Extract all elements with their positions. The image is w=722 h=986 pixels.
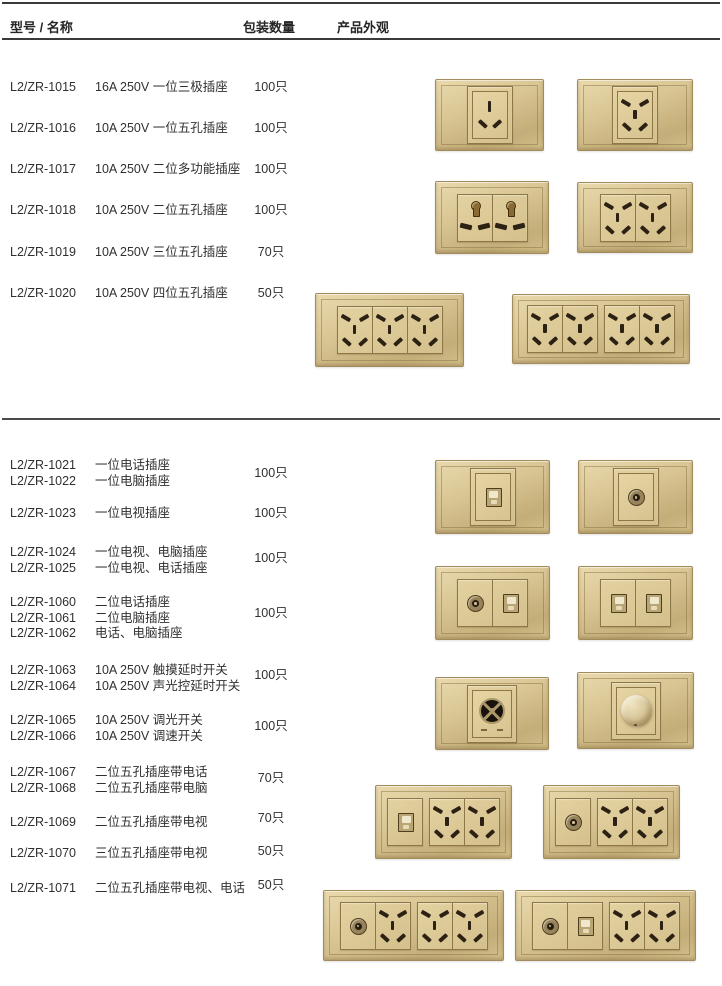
model-number: L2/ZR-1063 [10,662,92,678]
quantity: 50只 [249,843,293,859]
socket-module-group [555,798,591,846]
socket-slot [450,829,460,838]
socket-slot [434,829,444,838]
rj-jack-icon [567,903,602,949]
socket-module-group [612,86,658,144]
product-name: 10A 250V 四位五孔插座 [95,285,255,301]
socket-slot [473,909,483,917]
five-hole-socket-icon [617,91,653,139]
five-hole-socket-icon [375,903,410,949]
rj-jack-face [581,920,590,927]
socket-module-group [604,305,675,353]
tv-coax-ring [628,489,645,506]
model-number: L2/ZR-1067 [10,764,92,780]
universal-socket-icon [458,195,492,241]
socket-slot [486,806,496,814]
socket-slot [567,336,577,345]
product-image-two-gang-jack-socket [578,566,693,640]
product-image-five-hole-with-tv-socket [543,785,680,859]
socket-slot [428,314,438,322]
product-name: 二位五孔插座带电视、电话 [95,880,270,896]
model-number: L2/ZR-1021 [10,457,92,473]
socket-slot [609,336,619,345]
socket-slot [378,909,388,917]
socket-slot [393,314,403,322]
top-rule [2,2,720,4]
tv-coax-ring [467,595,484,612]
model-number: L2/ZR-1024 [10,544,92,560]
socket-slot [602,829,612,838]
product-name: 三位五孔插座带电视 [95,845,270,861]
tv-coax-dot [474,602,477,605]
column-header-appearance: 产品外观 [337,17,389,36]
quantity: 100只 [249,505,293,521]
dimmer-knob-mark [634,724,637,726]
model-number: L2/ZR-1064 [10,678,92,694]
product-name: 二位五孔插座带电脑 [95,780,270,796]
product-name: 10A 250V 声光控延时开关 [95,678,270,694]
socket-slot [473,933,483,942]
socket-slot [618,829,628,838]
socket-slot [622,122,632,131]
product-image-two-gang-multifunction-socket [435,181,549,254]
keyhole-stem [508,208,515,217]
socket-slot [626,313,636,321]
socket-slot [375,314,385,322]
product-image-five-hole-with-jack-socket [375,785,512,859]
rj-jack-face [650,597,659,604]
product-image-dimmer-switch [577,672,694,749]
socket-module-group [611,682,661,740]
tv-coax-dot [357,925,360,928]
product-image-telephone-computer-socket [435,460,550,534]
socket-module-group [597,798,668,846]
socket-module-group [429,798,500,846]
model-number: L2/ZR-1069 [10,814,92,830]
quantity: 70只 [249,810,293,826]
socket-slot [584,313,594,321]
model-number: L2/ZR-1062 [10,625,92,641]
socket-slot [358,337,368,346]
socket-slot [477,222,490,230]
tv-coax-core [472,600,479,607]
product-name: 二位电话插座 [95,594,270,610]
socket-slot [633,110,637,119]
socket-slot [603,201,613,209]
header-rule [2,38,720,40]
socket-slot [601,806,611,814]
socket-module-group [532,902,603,950]
socket-slot [566,313,576,321]
tv-coax-core [570,819,577,826]
product-name: 10A 250V 一位五孔插座 [95,120,255,136]
quantity: 100只 [249,605,293,621]
five-hole-socket-icon [639,306,674,352]
five-hole-socket-icon [418,903,452,949]
quantity: 100只 [249,550,293,566]
model-number: L2/ZR-1060 [10,594,92,610]
socket-slot [438,909,448,917]
quantity: 100只 [249,667,293,683]
quantity: 100只 [249,79,293,95]
socket-slot [380,933,390,942]
socket-slot [619,806,629,814]
model-number: L2/ZR-1018 [10,202,92,218]
socket-slot [377,337,387,346]
quantity: 100只 [249,161,293,177]
socket-slot [488,101,492,112]
model-number: L2/ZR-1023 [10,505,92,521]
socket-slot [621,201,631,209]
socket-slot [451,806,461,814]
tv-coax-icon [533,903,567,949]
rj-jack-body [578,917,594,936]
socket-slot [543,324,547,333]
socket-slot [532,336,542,345]
rj-jack-tab [403,825,409,829]
socket-slot [616,213,620,222]
socket-slot [661,313,671,321]
catalog-page: 型号 / 名称 包装数量 产品外观 L2/ZR-101516A 250V 一位三… [0,0,722,986]
rj-jack-tab [583,929,589,933]
product-name: 一位电视插座 [95,505,270,521]
socket-slot [640,225,650,234]
product-image-tv-socket [578,460,693,534]
five-hole-socket-icon [464,799,499,845]
socket-module-group [609,902,680,950]
socket-slot [459,222,472,230]
tv-coax-ring [565,814,582,831]
socket-slot [531,313,541,321]
product-name: 二位五孔插座带电话 [95,764,270,780]
five-hole-socket-icon [632,799,667,845]
model-number: L2/ZR-1066 [10,728,92,744]
socket-slot [420,909,430,917]
tv-coax-core [633,494,640,501]
product-name: 10A 250V 三位五孔插座 [95,244,255,260]
socket-module-group [600,579,671,627]
rj-jack-face [507,597,516,604]
socket-slot [655,324,659,333]
five-hole-socket-icon [610,903,644,949]
quantity: 70只 [249,244,293,260]
socket-slot [621,99,631,107]
universal-socket-icon [492,195,527,241]
product-name: 一位电视、电话插座 [95,560,270,576]
product-image-one-gang-three-pin-socket [435,79,544,151]
product-image-three-gang-five-hole-with-tv-socket [323,890,504,961]
socket-slot [649,933,659,942]
five-hole-socket-icon [528,306,562,352]
tv-coax-icon [556,799,590,845]
dimmer-knob-icon [616,687,656,735]
quantity: 50只 [249,285,293,301]
socket-slot [621,225,631,234]
product-name: 16A 250V 一位三极插座 [95,79,255,95]
rj-jack-icon [475,473,511,521]
socket-slot [549,313,559,321]
five-hole-socket-icon [372,307,407,353]
quantity: 100只 [249,120,293,136]
socket-slot [388,325,392,334]
five-hole-socket-icon [452,903,487,949]
socket-module-group [340,902,411,950]
socket-module-group [467,685,517,743]
socket-slot [485,829,495,838]
tv-coax-ring [350,918,367,935]
quantity: 100只 [249,465,293,481]
socket-slot [613,817,617,826]
socket-slot [396,933,406,942]
socket-slot [605,225,615,234]
socket-slot [643,313,653,321]
rj-jack-icon [388,799,422,845]
socket-slot [469,829,479,838]
socket-slot [578,324,582,333]
five-hole-socket-icon [598,799,632,845]
tv-coax-icon [341,903,375,949]
socket-slot [433,921,437,930]
socket-slot [614,933,624,942]
model-number: L2/ZR-1020 [10,285,92,301]
sound-sensor-icon [472,690,512,738]
product-name: 二位五孔插座带电视 [95,814,270,830]
rj-jack-face [489,491,498,498]
tv-coax-dot [572,821,575,824]
tv-coax-dot [549,925,552,928]
socket-module-group [467,86,513,144]
socket-slot [342,337,352,346]
rj-jack-tab [491,500,497,504]
socket-module-group [337,306,443,354]
socket-slot [480,817,484,826]
three-pin-socket-icon [472,91,508,139]
socket-slot [423,325,427,334]
socket-slot [492,119,502,128]
socket-slot [396,909,406,917]
product-name: 一位电视、电脑插座 [95,544,270,560]
product-image-sound-light-control-delay-switch [435,677,549,750]
product-name: 电话、电脑插座 [95,625,270,641]
model-number: L2/ZR-1068 [10,780,92,796]
socket-slot [653,829,663,838]
socket-module-group [387,798,423,846]
five-hole-socket-icon [644,903,679,949]
socket-slot [340,314,350,322]
socket-module-group [527,305,598,353]
socket-slot [468,806,478,814]
dimmer-knob-body [621,695,651,725]
sound-sensor-body [479,698,505,724]
socket-slot [630,909,640,917]
sound-sensor-center [490,708,495,713]
rj-jack-body [611,594,627,613]
socket-slot [494,222,507,230]
socket-slot [608,313,618,321]
tv-coax-icon [618,473,654,521]
socket-slot [647,909,657,917]
product-name: 10A 250V 调速开关 [95,728,270,744]
product-image-three-gang-five-hole-socket [315,293,464,367]
socket-slot [583,336,593,345]
tv-coax-core [355,923,362,930]
socket-slot [648,817,652,826]
tv-coax-ring [542,918,559,935]
five-hole-socket-icon [605,306,639,352]
rj-jack-body [503,594,519,613]
socket-slot [391,921,395,930]
socket-slot [639,99,649,107]
rj-jack-body [398,813,414,832]
quantity: 70只 [249,770,293,786]
rj-jack-tab [616,606,622,610]
socket-slot [636,806,646,814]
socket-slot [358,314,368,322]
socket-slot [625,336,635,345]
product-name: 一位电话插座 [95,457,270,473]
column-header-model-name: 型号 / 名称 [10,17,73,36]
socket-slot [438,933,448,942]
socket-slot [455,909,465,917]
product-name: 一位电脑插座 [95,473,270,489]
socket-slot [353,325,357,334]
socket-slot [433,806,443,814]
socket-slot [457,933,467,942]
socket-slot [512,222,525,230]
five-hole-socket-icon [338,307,372,353]
socket-module-group [613,468,659,526]
rj-jack-tab [651,606,657,610]
five-hole-socket-icon [601,195,635,241]
product-image-one-gang-five-hole-socket [577,79,693,151]
model-number: L2/ZR-1065 [10,712,92,728]
socket-module-group [470,468,516,526]
tv-coax-dot [635,496,638,499]
product-name: 10A 250V 二位多功能插座 [95,161,255,177]
socket-slot [625,921,629,930]
socket-slot [651,213,655,222]
tv-coax-icon [458,580,492,626]
rj-jack-icon [635,580,670,626]
sound-sensor-label-mark [481,729,487,731]
socket-slot [656,225,666,234]
rj-jack-icon [601,580,635,626]
socket-slot [660,921,664,930]
quantity: 100只 [249,202,293,218]
socket-module-group [417,902,488,950]
keyhole-stem [473,208,480,217]
rj-jack-body [646,594,662,613]
socket-slot [638,201,648,209]
socket-slot [428,337,438,346]
socket-slot [445,817,449,826]
product-name: 10A 250V 二位五孔插座 [95,202,255,218]
product-image-tv-computer-socket [435,566,550,640]
model-number: L2/ZR-1019 [10,244,92,260]
socket-module-group [457,194,528,242]
model-number: L2/ZR-1017 [10,161,92,177]
five-hole-socket-icon [430,799,464,845]
socket-slot [548,336,558,345]
socket-slot [393,337,403,346]
socket-slot [665,933,675,942]
product-image-four-gang-five-hole-socket [512,294,690,364]
socket-slot [644,336,654,345]
column-header-qty: 包装数量 [243,17,295,36]
socket-slot [468,921,472,930]
model-number: L2/ZR-1025 [10,560,92,576]
five-hole-socket-icon [407,307,442,353]
socket-slot [478,119,488,128]
socket-slot [422,933,432,942]
five-hole-socket-icon [635,195,670,241]
socket-slot [656,201,666,209]
socket-module-group [600,194,671,242]
product-name: 二位电脑插座 [95,610,270,626]
socket-slot [637,829,647,838]
rj-jack-face [402,816,411,823]
model-number: L2/ZR-1061 [10,610,92,626]
product-name: 10A 250V 触摸延时开关 [95,662,270,678]
socket-slot [410,314,420,322]
socket-slot [612,909,622,917]
model-number: L2/ZR-1016 [10,120,92,136]
product-image-five-hole-with-tv-phone-socket [515,890,696,961]
rj-jack-icon [492,580,527,626]
model-number: L2/ZR-1071 [10,880,92,896]
socket-slot [412,337,422,346]
tv-coax-core [547,923,554,930]
product-image-two-gang-five-hole-socket [577,182,693,253]
five-hole-socket-icon [562,306,597,352]
model-number: L2/ZR-1015 [10,79,92,95]
socket-slot [620,324,624,333]
socket-module-group [457,579,528,627]
socket-slot [660,336,670,345]
product-name: 10A 250V 调光开关 [95,712,270,728]
model-number: L2/ZR-1070 [10,845,92,861]
socket-slot [665,909,675,917]
quantity: 50只 [249,877,293,893]
model-number: L2/ZR-1022 [10,473,92,489]
section-divider-rule [2,418,720,420]
socket-slot [638,122,648,131]
socket-slot [630,933,640,942]
quantity: 100只 [249,718,293,734]
sound-sensor-label-mark [497,729,503,731]
socket-slot [654,806,664,814]
rj-jack-face [615,597,624,604]
rj-jack-tab [508,606,514,610]
rj-jack-body [486,488,502,507]
